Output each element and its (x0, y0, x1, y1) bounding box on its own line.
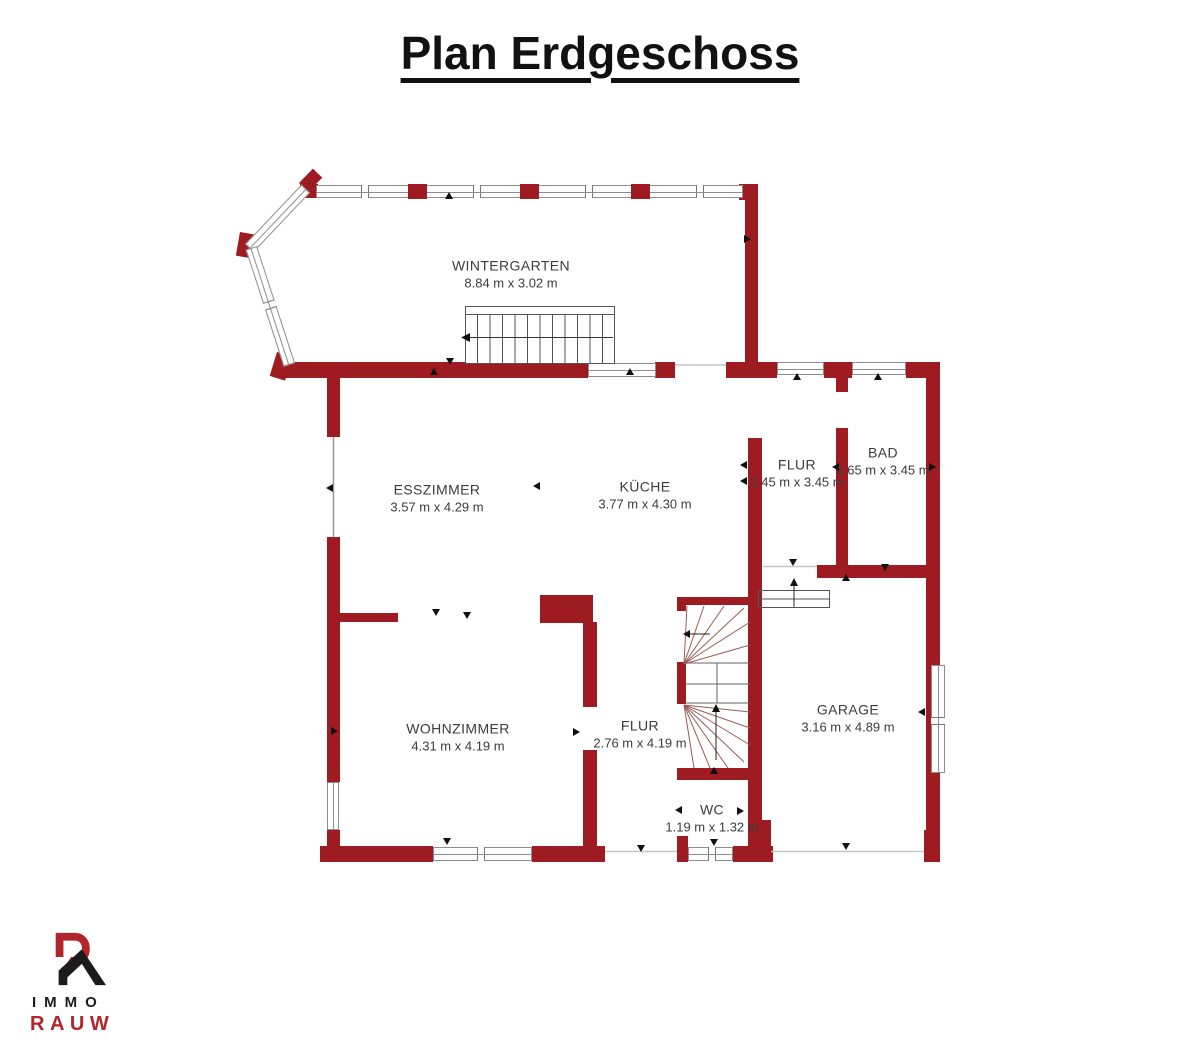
stairs-wintergarten (461, 307, 615, 364)
window (433, 847, 532, 861)
window (246, 246, 295, 367)
room-dimensions: 2.76 m x 4.19 m (593, 736, 686, 751)
window (327, 782, 339, 830)
plan-linework (0, 0, 1200, 1050)
room-dimensions: 3.57 m x 4.29 m (390, 500, 483, 515)
room-label-bad: BAD 1.65 m x 3.45 m (836, 445, 929, 478)
wall-segment (677, 836, 688, 862)
room-name: FLUR (750, 457, 843, 473)
wall-segment (926, 362, 940, 862)
window-mullion (473, 185, 481, 198)
room-label-esszimmer: ESSZIMMER 3.57 m x 4.29 m (390, 482, 483, 515)
room-dimensions: 1.45 m x 3.45 m (750, 475, 843, 490)
room-label-flur-og: FLUR 1.45 m x 3.45 m (750, 457, 843, 490)
winder-staircase (683, 606, 750, 768)
window-mullion (696, 185, 704, 198)
room-dimensions: 3.16 m x 4.89 m (801, 720, 894, 735)
room-label-wintergarten: WINTERGARTEN 8.84 m x 3.02 m (452, 258, 570, 291)
room-label-wc: WC 1.19 m x 1.32 m (665, 802, 758, 835)
wall-segment (836, 378, 848, 392)
wall-segment (824, 362, 852, 378)
room-name: BAD (836, 445, 929, 461)
room-name: ESSZIMMER (390, 482, 483, 498)
wall-segment (327, 537, 340, 782)
window-mullion (477, 847, 485, 861)
wall-segment (817, 565, 940, 578)
window-mullion (931, 717, 945, 725)
wall-segment (677, 768, 750, 780)
wall-segment (726, 362, 777, 378)
logo: IMMO RAUW (30, 924, 160, 1044)
window (931, 665, 945, 773)
door-element (588, 363, 656, 377)
garage-steps (759, 578, 830, 608)
page-title: Plan Erdgeschoss (401, 26, 800, 80)
room-label-flur-eg: FLUR 2.76 m x 4.19 m (593, 718, 686, 751)
wall-segment (532, 846, 605, 862)
wall-segment (320, 846, 433, 862)
wall-segment (520, 184, 539, 199)
room-label-wohnzimmer: WOHNZIMMER 4.31 m x 4.19 m (406, 721, 510, 754)
room-dimensions: 4.31 m x 4.19 m (406, 739, 510, 754)
wall-segment (655, 362, 675, 378)
room-dimensions: 8.84 m x 3.02 m (452, 276, 570, 291)
wall-segment (583, 750, 597, 846)
wall-segment (677, 597, 686, 611)
logo-text-immo: IMMO (32, 994, 105, 1011)
threshold-lines (605, 365, 924, 852)
wall-segment (677, 662, 686, 704)
wall-segment (327, 362, 340, 437)
room-dimensions: 3.77 m x 4.30 m (598, 497, 691, 512)
logo-mark-icon (46, 926, 108, 990)
wall-segment (745, 185, 758, 378)
wall-segment (327, 613, 398, 622)
window (245, 185, 310, 253)
window-mullion (585, 185, 593, 198)
room-name: WOHNZIMMER (406, 721, 510, 737)
room-dimensions: 1.65 m x 3.45 m (836, 463, 929, 478)
room-label-kueche: KÜCHE 3.77 m x 4.30 m (598, 479, 691, 512)
room-name: KÜCHE (598, 479, 691, 495)
room-name: FLUR (593, 718, 686, 734)
window (688, 847, 733, 861)
window-mullion (361, 185, 369, 198)
room-name: WC (665, 802, 758, 818)
logo-text-rauw: RAUW (30, 1013, 114, 1036)
wall-segment (631, 184, 650, 199)
window-mullion (263, 299, 277, 310)
room-label-garage: GARAGE 3.16 m x 4.89 m (801, 702, 894, 735)
room-name: WINTERGARTEN (452, 258, 570, 274)
room-name: GARAGE (801, 702, 894, 718)
window (777, 362, 824, 375)
chimney-block (540, 595, 593, 623)
window-mullion (708, 847, 716, 861)
wall-segment (408, 184, 427, 199)
wall-segment (924, 830, 940, 862)
floor-plan-page: Plan Erdgeschoss (0, 0, 1200, 1050)
window (852, 362, 906, 375)
wall-segment (677, 597, 750, 605)
wall-segment (583, 622, 597, 707)
room-dimensions: 1.19 m x 1.32 m (665, 820, 758, 835)
